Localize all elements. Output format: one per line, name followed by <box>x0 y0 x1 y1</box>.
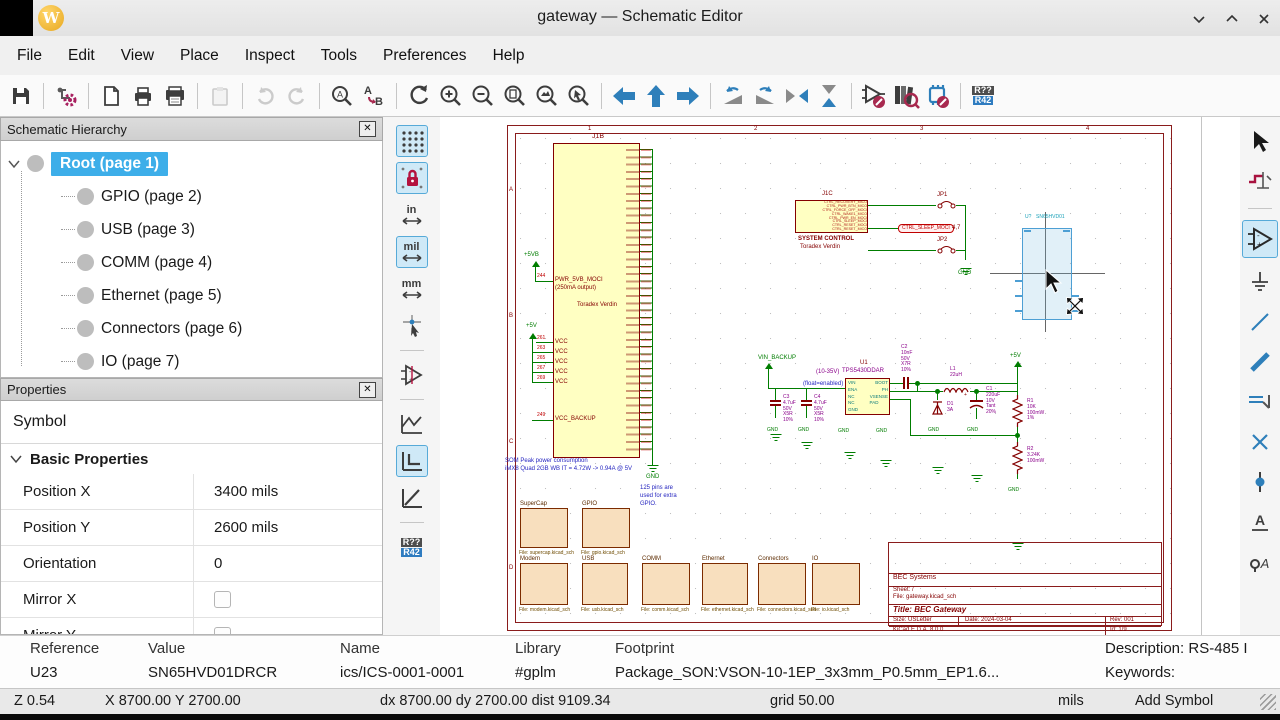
prop-row-orientation: Orientation 0 <box>1 546 382 582</box>
annotate-icon[interactable]: R??R42 <box>968 81 998 111</box>
sheet-bullet <box>77 188 94 205</box>
keywords-text: Keywords: <box>1105 664 1175 681</box>
junction-dot <box>935 389 940 394</box>
prop-row-mirror-y: Mirror Y <box>1 618 382 635</box>
gnd-symbol <box>647 465 658 473</box>
main-toolbar: A AB <box>0 75 1280 117</box>
ghost-value: SN65HVD01 <box>1036 215 1065 221</box>
properties-panel-body: Symbol Basic Properties Position X 3400 … <box>0 401 383 635</box>
paste-icon[interactable] <box>205 81 235 111</box>
redo-icon[interactable] <box>282 81 312 111</box>
right-toolbar: -+ A A <box>1240 117 1280 635</box>
position-y-value[interactable]: 2600 mils <box>193 510 382 545</box>
show-hidden-pins-icon[interactable]: -+ <box>396 359 428 391</box>
d1-labels: D13A <box>947 402 953 414</box>
module-gnd-pin-names <box>626 149 639 455</box>
menu-help[interactable]: Help <box>480 47 538 65</box>
sheet-gpio[interactable] <box>582 508 630 548</box>
module-gnd-pin-numbers <box>641 149 651 455</box>
minimize-icon[interactable] <box>1190 10 1208 28</box>
tree-item-label[interactable]: IO (page 7) <box>101 353 179 371</box>
add-junction-icon[interactable] <box>1244 466 1276 498</box>
net-5v-out[interactable]: +5V <box>1010 353 1021 360</box>
sheet-connectors[interactable] <box>758 563 806 605</box>
canvas-edge-line <box>1201 117 1202 635</box>
undo-icon[interactable] <box>250 81 280 111</box>
crosshair-cursor-icon[interactable] <box>396 310 428 342</box>
sheet-ethernet[interactable] <box>702 563 748 605</box>
rotate-ccw-icon[interactable] <box>718 81 748 111</box>
sheet-bullet <box>77 320 94 337</box>
left-toolbar: in mil mm -+ R??R42 <box>383 117 440 635</box>
orientation-value[interactable]: 0 <box>193 546 382 581</box>
add-bus-entry-icon[interactable] <box>1244 386 1276 418</box>
description-text: Description: RS-485 I <box>1105 640 1280 657</box>
ghost-ref: U? <box>1025 215 1031 221</box>
r1-labels: R110K100mW1% <box>1027 399 1044 422</box>
junction-dot <box>1015 433 1020 438</box>
chevron-down-icon[interactable] <box>7 157 21 171</box>
cursor-position: X 8700.00 Y 2700.00 <box>105 693 241 709</box>
power-arrow <box>532 261 540 267</box>
maximize-icon[interactable] <box>1223 10 1241 28</box>
tree-item-label[interactable]: COMM (page 4) <box>101 254 212 272</box>
schematic-canvas[interactable]: 1 2 3 4 A B C D J1B Toradex Verdin GND +… <box>440 117 1240 635</box>
jumper-jp2[interactable] <box>936 244 958 256</box>
tree-item-root[interactable]: Root (page 1) <box>7 147 168 180</box>
title-block: BEC Systems Sheet: / File: gateway.kicad… <box>888 542 1162 626</box>
junction-dot <box>974 389 979 394</box>
footprint-value: Package_SON:VSON-10-1EP_3x3mm_P0.5mm_EP1… <box>615 664 1085 681</box>
position-x-value[interactable]: 3400 mils <box>193 474 382 509</box>
value-value: SN65HVD01DRCR <box>148 664 277 681</box>
active-tool-indicator: Add Symbol <box>1135 693 1213 709</box>
power-flag-5v[interactable]: +5V <box>526 323 537 330</box>
chevron-down-icon[interactable] <box>9 452 23 466</box>
net-label-ctrl-sleep[interactable]: CTRL_SLEEP_MOCI <box>898 224 954 233</box>
svg-text:B: B <box>375 96 383 108</box>
relative-delta: dx 8700.00 dy 2700.00 dist 9109.34 <box>380 693 611 709</box>
tree-item-label[interactable]: Connectors (page 6) <box>101 320 242 338</box>
hierarchy-panel-title: Schematic Hierarchy <box>7 122 127 137</box>
plot-icon[interactable] <box>160 81 190 111</box>
c1-labels: C1220uF10VTant20% <box>986 387 1000 416</box>
move-icon <box>1062 293 1088 319</box>
note-gpio[interactable]: 125 pins are <box>640 485 673 492</box>
svg-text:A: A <box>1255 512 1265 528</box>
annotate-auto-icon[interactable]: R??R42 <box>396 531 428 563</box>
resize-grip[interactable] <box>1260 694 1276 710</box>
tree-item-usb[interactable]: USB (page 3) <box>61 213 195 246</box>
hierarchy-close-icon[interactable]: ✕ <box>359 121 376 137</box>
prop-row-position-x: Position X 3400 mils <box>1 474 382 510</box>
select-tool-icon[interactable] <box>1244 125 1276 157</box>
sheet-modem[interactable] <box>520 563 568 605</box>
refresh-view-icon[interactable] <box>404 81 434 111</box>
edit-footprint-icon[interactable] <box>923 81 953 111</box>
symbol-info-bar: Reference U23 Value SN65HVD01DRCR Name i… <box>0 635 1280 689</box>
45deg-wires-icon[interactable] <box>396 482 428 514</box>
menu-bar: File Edit View Place Inspect Tools Prefe… <box>0 36 1280 75</box>
menu-view[interactable]: View <box>108 47 167 65</box>
window-title: gateway — Schematic Editor <box>0 8 1280 26</box>
svg-text:-: - <box>1257 231 1260 240</box>
print-icon[interactable] <box>128 81 158 111</box>
units-mm-icon[interactable]: mm <box>396 273 428 305</box>
mirror-y-checkbox[interactable] <box>214 627 231 635</box>
properties-panel-title: Properties <box>7 382 66 397</box>
nav-forward-icon[interactable] <box>673 81 703 111</box>
grid-size: grid 50.00 <box>770 693 835 709</box>
screen-bottom-edge <box>0 714 1280 720</box>
add-bus-icon[interactable] <box>1244 346 1276 378</box>
sheet-bullet <box>27 155 44 172</box>
properties-close-icon[interactable]: ✕ <box>359 382 376 398</box>
nav-up-icon[interactable] <box>641 81 671 111</box>
net-vin-backup[interactable]: VIN_BACKUP <box>758 355 796 362</box>
library-value: #gplm <box>515 664 556 681</box>
tree-item-io[interactable]: IO (page 7) <box>61 345 179 378</box>
power-flag-5vb[interactable]: +5VB <box>524 252 539 259</box>
svg-text:+: + <box>1257 240 1262 249</box>
zoom-out-icon[interactable] <box>468 81 498 111</box>
l1-labels: L122uH <box>950 367 962 379</box>
mirror-horizontal-icon[interactable] <box>782 81 812 111</box>
title-block-title: Title: BEC Gateway <box>889 604 1161 616</box>
sysctrl-pin-names: CTRL_RECOVERY_MICOCTRL_PWR_BTN_MICO CTRL… <box>797 201 867 232</box>
units-inches-icon[interactable]: in <box>396 199 428 231</box>
svg-text:A: A <box>337 89 343 99</box>
mirror-x-checkbox[interactable] <box>214 591 231 608</box>
rotate-cw-icon[interactable] <box>750 81 780 111</box>
tree-guide-line <box>21 171 22 366</box>
sheet-bullet <box>77 353 94 370</box>
zoom-selection-icon[interactable] <box>564 81 594 111</box>
tree-item-comm[interactable]: COMM (page 4) <box>61 246 212 279</box>
tree-item-gpio[interactable]: GPIO (page 2) <box>61 180 202 213</box>
zoom-objects-icon[interactable] <box>532 81 562 111</box>
gnd-rail-wire <box>652 149 653 465</box>
prop-row-mirror-x: Mirror X <box>1 582 382 618</box>
grid-override-lock-icon[interactable] <box>396 162 428 194</box>
menu-inspect[interactable]: Inspect <box>232 47 308 65</box>
reference-value: U23 <box>30 664 58 681</box>
grid-toggle-icon[interactable] <box>396 125 428 157</box>
sysctrl-ref[interactable]: J1C <box>822 191 833 198</box>
add-wire-icon[interactable] <box>1244 306 1276 338</box>
diode-d1[interactable] <box>931 400 944 416</box>
svg-text:A: A <box>1260 556 1270 571</box>
add-power-port-icon[interactable] <box>1244 266 1276 298</box>
hierarchy-tree: Root (page 1) GPIO (page 2) USB (page 3)… <box>0 141 383 378</box>
menu-place[interactable]: Place <box>167 47 232 65</box>
hv-wires-icon[interactable] <box>396 445 428 477</box>
zoom-fit-icon[interactable] <box>500 81 530 111</box>
module-name: Toradex Verdin <box>566 302 628 309</box>
sheet-bullet <box>77 287 94 304</box>
page-settings-icon[interactable] <box>96 81 126 111</box>
free-angle-wires-icon[interactable] <box>396 408 428 440</box>
save-icon[interactable] <box>6 81 36 111</box>
sheet-comm[interactable] <box>642 563 690 605</box>
basic-properties-section[interactable]: Basic Properties <box>1 444 382 474</box>
units-indicator: mils <box>1058 693 1084 709</box>
add-net-label-icon[interactable]: A <box>1244 546 1276 578</box>
junction-dot <box>915 381 920 386</box>
schematic-setup-icon[interactable] <box>51 81 81 111</box>
browse-libraries-icon[interactable] <box>891 81 921 111</box>
sheet-usb[interactable] <box>582 563 628 605</box>
find-icon[interactable]: A <box>327 81 357 111</box>
resistor-r2[interactable] <box>1012 442 1023 474</box>
svg-text:A: A <box>364 85 372 97</box>
properties-subtitle: Symbol <box>1 401 382 444</box>
r2-labels: R23.24K100mW <box>1027 447 1044 464</box>
tree-item-label[interactable]: Root (page 1) <box>51 152 168 176</box>
c3-labels: C34.7uF50VX5R10% <box>783 395 796 424</box>
sheet-supercap[interactable] <box>520 508 568 548</box>
close-icon[interactable] <box>1255 10 1273 28</box>
tree-item-label[interactable]: Ethernet (page 5) <box>101 287 222 305</box>
menu-tools[interactable]: Tools <box>308 47 370 65</box>
u1-value[interactable]: TPS5430DDAR <box>842 368 884 375</box>
u1-ref[interactable]: U1 <box>860 360 868 367</box>
add-label-icon[interactable]: A <box>1244 506 1276 538</box>
mirror-vertical-icon[interactable] <box>814 81 844 111</box>
tree-item-ethernet[interactable]: Ethernet (page 5) <box>61 279 222 312</box>
status-bar: Z 0.54 X 8700.00 Y 2700.00 dx 8700.00 dy… <box>0 688 1280 715</box>
mouse-cursor <box>1043 269 1065 295</box>
module-ref[interactable]: J1B <box>592 133 604 142</box>
units-mils-icon[interactable]: mil <box>396 236 428 268</box>
c4-labels: C44.7uF50VX5R10% <box>814 395 827 424</box>
sheet-bullet <box>77 254 94 271</box>
c2-labels: C210nF50VX7R10% <box>901 345 912 374</box>
tree-item-label[interactable]: GPIO (page 2) <box>101 188 202 206</box>
kicad-schematic-editor-window: W gateway — Schematic Editor File Edit V… <box>0 0 1280 720</box>
menu-edit[interactable]: Edit <box>55 47 108 65</box>
menu-preferences[interactable]: Preferences <box>370 47 480 65</box>
add-symbol-tool-icon[interactable]: -+ <box>1242 220 1278 258</box>
properties-panel-header[interactable]: Properties ✕ <box>0 378 383 401</box>
jumper-jp1[interactable] <box>936 199 958 211</box>
find-replace-icon[interactable]: AB <box>359 81 389 111</box>
menu-file[interactable]: File <box>4 47 55 65</box>
edit-symbol-icon[interactable] <box>859 81 889 111</box>
resistor-r1[interactable] <box>1012 395 1023 427</box>
zoom-in-icon[interactable] <box>436 81 466 111</box>
highlight-net-icon[interactable] <box>1244 165 1276 197</box>
note-som-power[interactable]: SOM Peak power consumption <box>505 458 588 465</box>
power-arrow <box>529 333 537 339</box>
tree-item-label[interactable]: USB (page 3) <box>101 221 195 239</box>
sheet-bullet <box>77 221 94 238</box>
zoom-level: Z 0.54 <box>14 693 55 709</box>
sheet-io[interactable] <box>812 563 860 605</box>
prop-row-position-y: Position Y 2600 mils <box>1 510 382 546</box>
hierarchy-panel-header[interactable]: Schematic Hierarchy ✕ <box>0 117 383 141</box>
no-connect-icon[interactable] <box>1244 426 1276 458</box>
nav-back-icon[interactable] <box>609 81 639 111</box>
tree-item-connectors[interactable]: Connectors (page 6) <box>61 312 242 345</box>
name-value: ics/ICS-0001-0001 <box>340 664 464 681</box>
